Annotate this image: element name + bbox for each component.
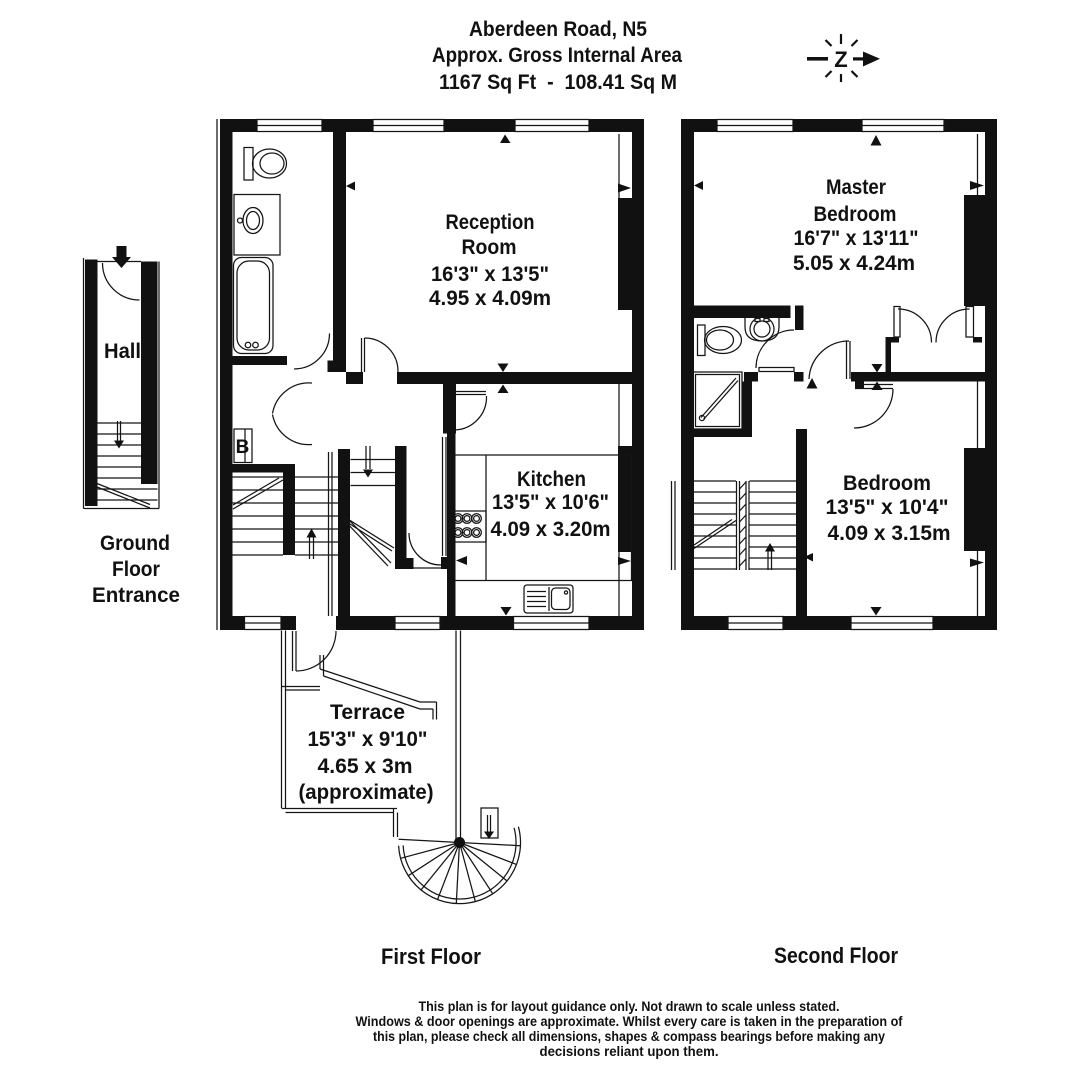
svg-text:Z: Z (834, 47, 847, 72)
svg-text:this plan, please check all di: this plan, please check all dimensions, … (373, 1029, 885, 1044)
svg-text:Kitchen: Kitchen (517, 468, 586, 491)
svg-text:Bedroom: Bedroom (814, 203, 897, 226)
svg-text:16'3" x 13'5": 16'3" x 13'5" (431, 263, 549, 286)
svg-text:4.09 x 3.15m: 4.09 x 3.15m (828, 522, 951, 545)
svg-text:Entrance: Entrance (92, 584, 180, 607)
svg-text:Second Floor: Second Floor (774, 943, 898, 968)
svg-text:This plan is for layout guidan: This plan is for layout guidance only. N… (419, 999, 840, 1014)
svg-text:(approximate): (approximate) (299, 781, 434, 804)
svg-text:Hall: Hall (104, 340, 141, 363)
svg-text:4.95 x 4.09m: 4.95 x 4.09m (429, 287, 551, 310)
svg-text:Terrace: Terrace (330, 701, 405, 724)
svg-text:1167 Sq Ft - 108.41 Sq M: 1167 Sq Ft - 108.41 Sq M (439, 71, 677, 94)
svg-text:First Floor: First Floor (381, 944, 481, 969)
svg-text:Aberdeen Road, N5: Aberdeen Road, N5 (469, 18, 647, 41)
svg-text:5.05 x 4.24m: 5.05 x 4.24m (793, 252, 915, 275)
svg-text:Ground: Ground (100, 532, 170, 555)
svg-text:4.09 x 3.20m: 4.09 x 3.20m (491, 518, 611, 541)
svg-text:Reception: Reception (446, 211, 535, 234)
svg-text:decisions reliant upon them.: decisions reliant upon them. (540, 1044, 719, 1059)
svg-text:15'3" x 9'10": 15'3" x 9'10" (308, 728, 428, 751)
svg-text:Approx. Gross Internal Area: Approx. Gross Internal Area (432, 44, 682, 67)
svg-text:Floor: Floor (112, 558, 160, 581)
svg-text:Master: Master (826, 176, 886, 199)
svg-text:13'5" x 10'4": 13'5" x 10'4" (826, 496, 949, 519)
svg-text:B: B (236, 437, 250, 458)
svg-text:Windows & door openings are ap: Windows & door openings are approximate.… (356, 1014, 903, 1029)
svg-text:13'5" x 10'6": 13'5" x 10'6" (492, 491, 609, 514)
svg-text:Room: Room (462, 236, 517, 259)
svg-text:4.65 x 3m: 4.65 x 3m (318, 755, 413, 778)
svg-text:16'7" x 13'11": 16'7" x 13'11" (794, 227, 919, 250)
svg-text:Bedroom: Bedroom (843, 472, 931, 495)
